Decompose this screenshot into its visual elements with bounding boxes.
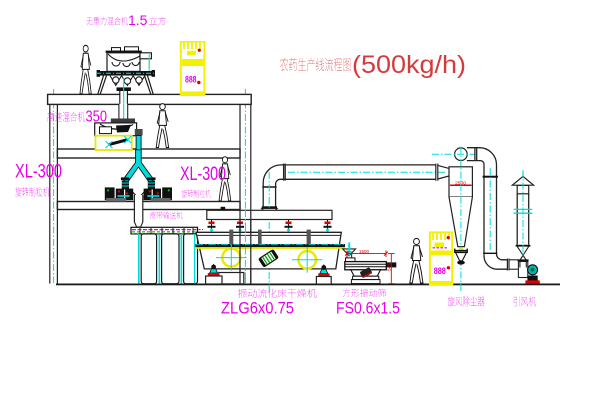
svg-text:545: 545	[387, 263, 392, 271]
svg-text:888: 888	[434, 266, 446, 277]
svg-text:350: 350	[86, 109, 108, 126]
svg-text:1.5: 1.5	[128, 12, 148, 28]
svg-text:XL-300: XL-300	[15, 162, 62, 183]
svg-text:XL-300: XL-300	[180, 164, 226, 185]
svg-text:1500: 1500	[359, 249, 369, 254]
svg-text:FS0.6x1.5: FS0.6x1.5	[336, 299, 400, 318]
svg-text:888: 888	[185, 75, 197, 86]
svg-text:ZLG6x0.75: ZLG6x0.75	[221, 299, 294, 318]
svg-text:(500kg/h): (500kg/h)	[352, 51, 466, 79]
